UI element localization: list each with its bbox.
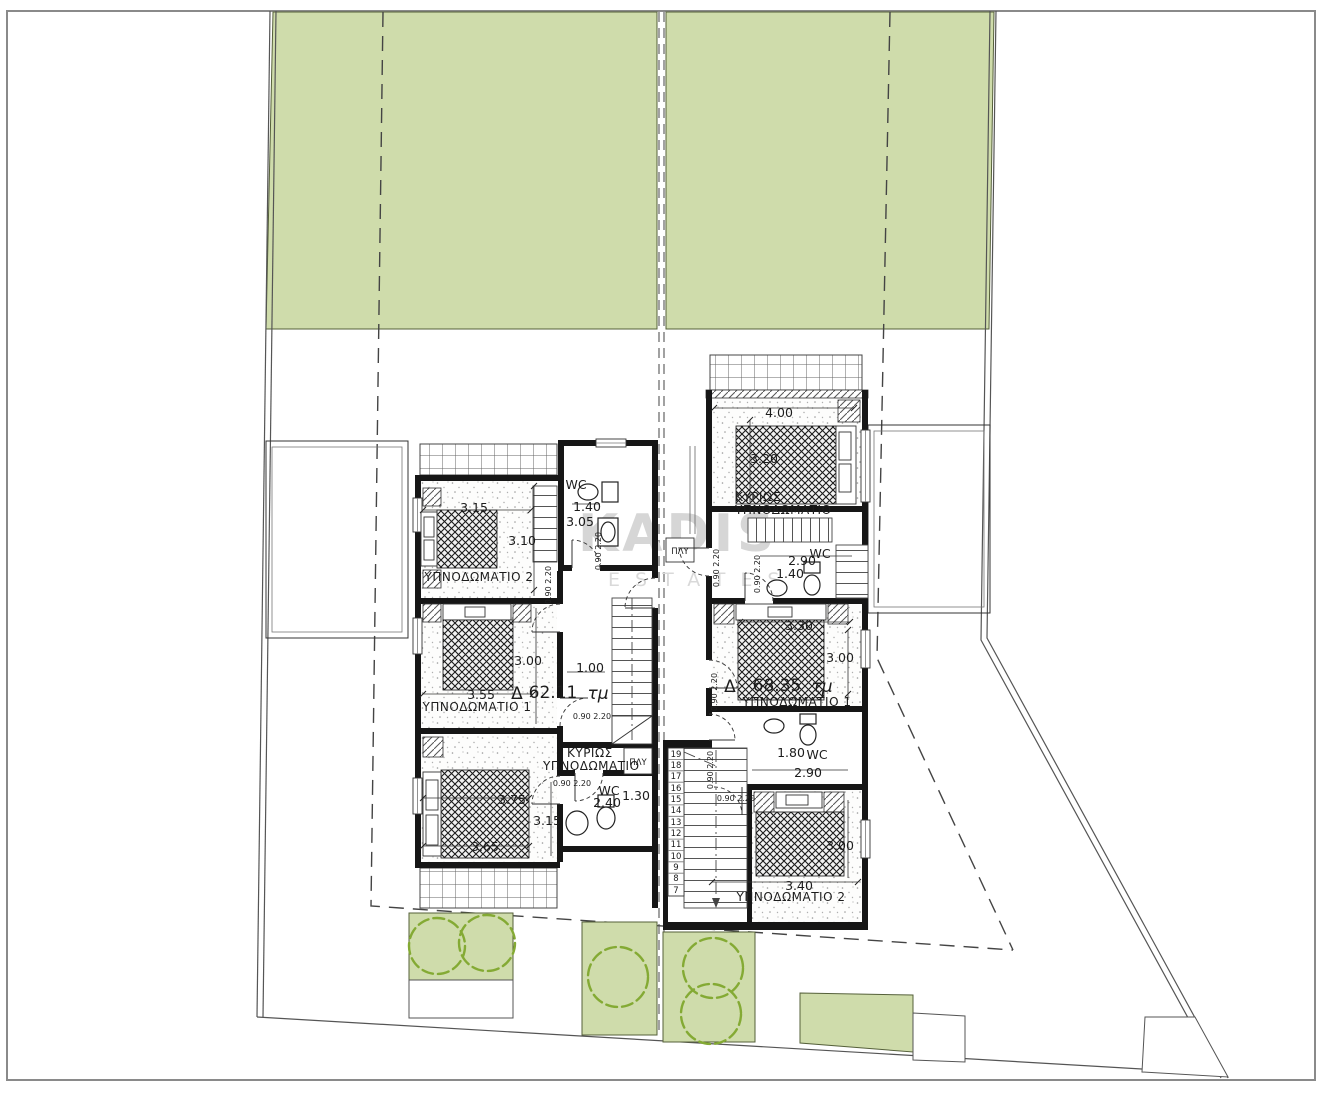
bed-icon (754, 792, 844, 876)
door-size-label: 0.90 2.20 (712, 549, 721, 587)
dim-label: 3.15 (460, 500, 488, 515)
stair-nook-b (836, 545, 868, 598)
door-size-label: 0.90 2.20 (710, 673, 719, 711)
plot-boundary-right (987, 11, 1228, 1078)
door-size-label: 0.90 2.20 (706, 751, 715, 789)
balcony-left (266, 441, 408, 638)
room-label-bedroom1-b: ΥΠΝΟΔΩΜΑΤΙΟ 1 (742, 695, 852, 709)
pergola-top-b (710, 355, 862, 390)
stair-number: 7 (673, 886, 678, 896)
stair-number: 11 (671, 840, 682, 850)
green-area-right (666, 12, 994, 329)
room-label-laundry-b: ΠΛΥ (671, 547, 689, 557)
room-label-bedroom1-a: ΥΠΝΟΔΩΜΑΤΙΟ 1 (422, 700, 532, 714)
area-unit-a: τμ (587, 684, 608, 704)
pergola-top-a (420, 444, 557, 475)
room-label-wc: WC (806, 747, 827, 762)
garden-patch-3 (663, 932, 755, 1042)
green-area-left (266, 12, 657, 329)
dim-label: 1.30 (622, 788, 650, 803)
dim-label: 3.75 (498, 792, 526, 807)
door-size-label: 0.90 2.20 (753, 555, 762, 593)
door-size-label: 0.90 2.20 (573, 712, 611, 721)
wardrobe-icon (533, 486, 557, 562)
sink-icon (767, 580, 787, 596)
dim-label: 2.40 (593, 795, 621, 810)
stair-number: 19 (671, 750, 682, 760)
door-size-label: 0.90 2.20 (717, 794, 755, 803)
toilet-icon (800, 714, 816, 745)
room-label-bedroom2-a: ΥΠΝΟΔΩΜΑΤΙΟ 2 (424, 570, 534, 584)
room-label-master-a-1: ΚΥΡΙΩΣ (567, 746, 613, 760)
sink-icon (566, 811, 588, 835)
dim-label: 3.15 (533, 813, 561, 828)
stair-number: 8 (673, 874, 678, 884)
door-size-label: 0.90 2.20 (544, 566, 553, 604)
wardrobe-icon (748, 518, 832, 542)
dim-label: 3.10 (508, 533, 536, 548)
balcony-right (868, 425, 990, 613)
dim-label: 1.00 (576, 660, 604, 675)
stair-number: 17 (671, 772, 682, 782)
stair-number: 12 (671, 829, 682, 839)
dim-label: 3.05 (566, 514, 594, 529)
door-size-label: 0.90 2.20 (553, 779, 591, 788)
staircase-a (612, 598, 652, 744)
room-label-laundry-a: ΠΛΥ (629, 758, 647, 768)
garden-patches (409, 913, 1228, 1077)
site-plan-drawing: KADIS ESTATES (0, 0, 1324, 1096)
dim-label: 1.40 (776, 566, 804, 581)
area-unit-b: τμ (811, 677, 832, 697)
dim-label: 3.00 (826, 650, 854, 665)
paved-patch-3 (1142, 1017, 1228, 1077)
stair-number: 14 (671, 806, 682, 816)
dim-label: 4.00 (765, 405, 793, 420)
stair-number: 9 (673, 863, 678, 873)
area-value-b: 68.35 (753, 676, 802, 696)
room-label-master-b-1: ΚΥΡΙΩΣ (735, 490, 781, 504)
dim-label: 1.80 (777, 745, 805, 760)
room-label-master-b-2: ΥΠΝΟΔΩΜΑΤΙΟ (734, 503, 832, 517)
room-label-bedroom2-b: ΥΠΝΟΔΩΜΑΤΙΟ 2 (736, 890, 846, 904)
stair-number: 10 (671, 852, 682, 862)
room-label-wc: WC (565, 477, 586, 492)
stair-number: 15 (671, 795, 682, 805)
pergola-bottom-a (420, 868, 557, 908)
dim-label: 3.00 (514, 653, 542, 668)
dim-label: 3.65 (471, 839, 499, 854)
room-label-master-a-2: ΥΠΝΟΔΩΜΑΤΙΟ (542, 759, 640, 773)
paved-patch-1 (409, 980, 513, 1018)
floor-plan-canvas: KADIS ESTATES (0, 0, 1324, 1096)
sink-icon (764, 719, 784, 733)
dim-label: 3.20 (750, 451, 778, 466)
door-size-label: 0.90 2.20 (594, 532, 603, 570)
dim-label: 2.90 (794, 765, 822, 780)
garden-patch-4 (800, 993, 913, 1052)
stair-number: 16 (671, 784, 682, 794)
paved-patch-2 (913, 1013, 965, 1062)
area-delta-b: Δ (724, 677, 736, 697)
garden-patch-2 (582, 922, 657, 1035)
stair-number: 13 (671, 818, 682, 828)
area-value-a: 62.11 (529, 683, 578, 703)
plot-boundary-right-inner (981, 11, 1221, 1078)
dim-label: 3.30 (785, 618, 813, 633)
stair-number: 18 (671, 761, 682, 771)
plot-boundary-left (257, 11, 270, 1017)
dim-label: 3.00 (826, 838, 854, 853)
dim-label: 1.40 (573, 499, 601, 514)
